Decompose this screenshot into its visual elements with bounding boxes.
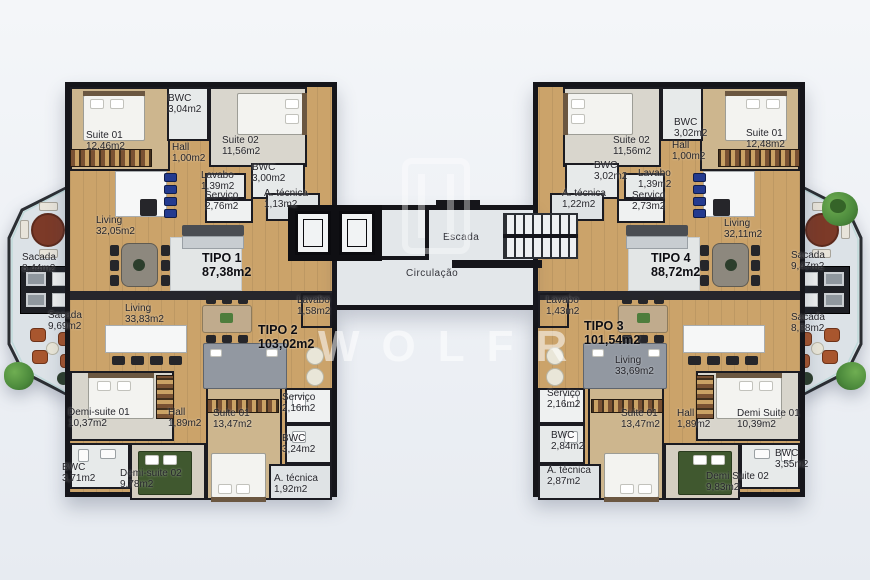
balcony-side-table bbox=[811, 342, 824, 355]
room-label: Lavabo1,39m2 bbox=[638, 169, 671, 190]
shrub-icon bbox=[836, 362, 866, 390]
dining-chair bbox=[161, 275, 170, 286]
room-label: Hall1,89m2 bbox=[168, 408, 201, 429]
stairs-label: Escada bbox=[443, 232, 479, 243]
island-chair bbox=[112, 356, 125, 365]
dining-chair bbox=[751, 245, 760, 256]
room-label: A. técnica1,22m2 bbox=[562, 189, 606, 210]
room-label: BWC3,02m2 bbox=[594, 161, 627, 182]
room-label: Suite 0113,47m2 bbox=[621, 409, 660, 430]
room-label: BWC3,00m2 bbox=[252, 163, 285, 184]
room-label: Lavabo1,39m2 bbox=[201, 171, 234, 192]
stair-rail bbox=[503, 234, 578, 238]
island-chair bbox=[688, 356, 701, 365]
room-label: Lavabo1,58m2 bbox=[297, 296, 330, 317]
lounge-chair bbox=[824, 328, 840, 342]
room-label: Suite 0112,48m2 bbox=[746, 129, 785, 150]
dining-chair bbox=[654, 335, 664, 343]
island-chair bbox=[745, 356, 758, 365]
island-chair bbox=[150, 356, 163, 365]
pouf bbox=[546, 347, 564, 365]
tree-icon bbox=[822, 192, 858, 226]
dining-chair bbox=[238, 335, 248, 343]
centerpiece bbox=[725, 259, 737, 271]
core-wall bbox=[452, 260, 542, 268]
room-label: Sacada9,69m2 bbox=[48, 311, 82, 332]
dining-chair bbox=[222, 296, 232, 304]
shrub-icon bbox=[4, 362, 34, 390]
balcony-side-table bbox=[46, 342, 59, 355]
room-label: BWC3,55m2 bbox=[775, 449, 808, 470]
dining-chair bbox=[654, 296, 664, 304]
bed bbox=[567, 93, 633, 135]
room-label: Demi-suite 029,78m2 bbox=[120, 469, 182, 490]
kitchen-island bbox=[683, 325, 765, 353]
dining-chair bbox=[751, 275, 760, 286]
unit-label: TIPO 2103,02m2 bbox=[258, 323, 314, 351]
room-label: Serviço2,16m2 bbox=[282, 393, 315, 414]
island-chair bbox=[726, 356, 739, 365]
dining-chair bbox=[110, 245, 119, 256]
sofa bbox=[182, 225, 244, 236]
slab-band bbox=[70, 291, 332, 300]
dining-chair bbox=[110, 260, 119, 271]
centerpiece bbox=[220, 313, 233, 323]
room-label: Serviço2,16m2 bbox=[547, 389, 580, 410]
sofa-pillow bbox=[210, 349, 222, 357]
dining-chair bbox=[700, 275, 709, 286]
dining-chair bbox=[110, 275, 119, 286]
island-chair bbox=[707, 356, 720, 365]
bar-stool bbox=[693, 209, 706, 218]
balcony-left bbox=[6, 186, 70, 396]
room-label: Serviço2,76m2 bbox=[205, 191, 238, 212]
room-label: Living32,11m2 bbox=[724, 219, 762, 240]
room-label: Living33,83m2 bbox=[125, 304, 164, 325]
elevator-icon bbox=[339, 211, 375, 255]
pouf bbox=[306, 368, 324, 386]
dining-chair bbox=[700, 245, 709, 256]
room-label: Sacada8,58m2 bbox=[791, 313, 825, 334]
sofa bbox=[626, 236, 688, 249]
room-label: Demi Suite 029,83m2 bbox=[706, 472, 769, 493]
room-label: Suite 0112,46m2 bbox=[86, 131, 125, 152]
room-label: BWC3,02m2 bbox=[674, 118, 707, 139]
toilet-icon bbox=[78, 449, 89, 462]
stove-icon bbox=[713, 199, 730, 216]
balcony-chair bbox=[39, 202, 58, 211]
sink-icon bbox=[100, 449, 116, 459]
core-wall bbox=[425, 205, 429, 260]
dining-chair bbox=[622, 296, 632, 304]
wardrobe bbox=[718, 149, 800, 167]
grill-icon bbox=[824, 293, 844, 307]
room-label: A. técnica2,87m2 bbox=[547, 466, 591, 487]
room-label: BWC3,24m2 bbox=[282, 434, 315, 455]
floor-plan: Suite 0112,46m2 BWC3,04m2 Suite 0211,56m… bbox=[0, 0, 870, 580]
balcony-round-table bbox=[31, 213, 65, 247]
room-label: Suite 0211,56m2 bbox=[222, 136, 260, 157]
elevator-icon bbox=[295, 211, 331, 255]
elevator-bank bbox=[288, 205, 382, 261]
bar-stool bbox=[164, 185, 177, 194]
dining-chair bbox=[206, 296, 216, 304]
unit-label: TIPO 3101,54m2 bbox=[584, 319, 640, 347]
grill-icon bbox=[26, 293, 46, 307]
room-label: Suite 0113,47m2 bbox=[213, 409, 252, 430]
pouf bbox=[546, 368, 564, 386]
lounge-chair bbox=[822, 350, 838, 364]
room-label: Serviço2,73m2 bbox=[632, 191, 665, 212]
dining-chair bbox=[161, 260, 170, 271]
room-label: Hall1,00m2 bbox=[172, 143, 205, 164]
dining-chair bbox=[206, 335, 216, 343]
room-label: Sacada8,44m2 bbox=[22, 253, 56, 274]
bar-stool bbox=[164, 173, 177, 182]
bed bbox=[237, 93, 303, 135]
sink-icon bbox=[754, 449, 770, 459]
room-label: BWC2,84m2 bbox=[551, 431, 584, 452]
room-label: Living32,05m2 bbox=[96, 216, 135, 237]
room-label: BWC3,71m2 bbox=[62, 463, 95, 484]
room-label: Lavabo1,43m2 bbox=[546, 296, 579, 317]
circulation-label: Circulação bbox=[406, 268, 458, 279]
kitchen-island bbox=[105, 325, 187, 353]
room-label: Hall1,00m2 bbox=[672, 141, 705, 162]
room-label: Suite 0211,56m2 bbox=[613, 136, 651, 157]
unit-label: TIPO 187,38m2 bbox=[202, 251, 251, 279]
balcony-chair bbox=[20, 220, 29, 239]
room-label: A. técnica1,13m2 bbox=[264, 189, 308, 210]
bed bbox=[604, 453, 659, 498]
dining-chair bbox=[222, 335, 232, 343]
sofa bbox=[626, 225, 688, 236]
sofa-pillow bbox=[592, 349, 604, 357]
dining-chair bbox=[638, 296, 648, 304]
bar-stool bbox=[693, 185, 706, 194]
bar-stool bbox=[693, 173, 706, 182]
bar-stool bbox=[164, 209, 177, 218]
room-label: Hall1,89m2 bbox=[677, 409, 710, 430]
grill-icon bbox=[26, 272, 46, 286]
centerpiece bbox=[133, 259, 145, 271]
lounge-chair bbox=[32, 350, 48, 364]
room-label: Demi Suite 0110,39m2 bbox=[737, 409, 800, 430]
island-chair bbox=[131, 356, 144, 365]
room-label: Sacada9,47m2 bbox=[791, 251, 825, 272]
dining-chair bbox=[161, 245, 170, 256]
room-label: Living33,69m2 bbox=[615, 356, 654, 377]
room-label: A. técnica1,92m2 bbox=[274, 474, 318, 495]
sofa bbox=[182, 236, 244, 249]
bar-stool bbox=[164, 197, 177, 206]
dining-chair bbox=[751, 260, 760, 271]
core-wall bbox=[436, 200, 480, 210]
dining-chair bbox=[700, 260, 709, 271]
room-label: Demi-suite 0110,37m2 bbox=[68, 408, 130, 429]
lounge-chair bbox=[30, 328, 46, 342]
unit-label: TIPO 488,72m2 bbox=[651, 251, 700, 279]
stove-icon bbox=[140, 199, 157, 216]
bed bbox=[211, 453, 266, 498]
dining-chair bbox=[238, 296, 248, 304]
island-chair bbox=[169, 356, 182, 365]
bar-stool bbox=[693, 197, 706, 206]
room-label: BWC3,04m2 bbox=[168, 94, 201, 115]
grill-icon bbox=[824, 272, 844, 286]
